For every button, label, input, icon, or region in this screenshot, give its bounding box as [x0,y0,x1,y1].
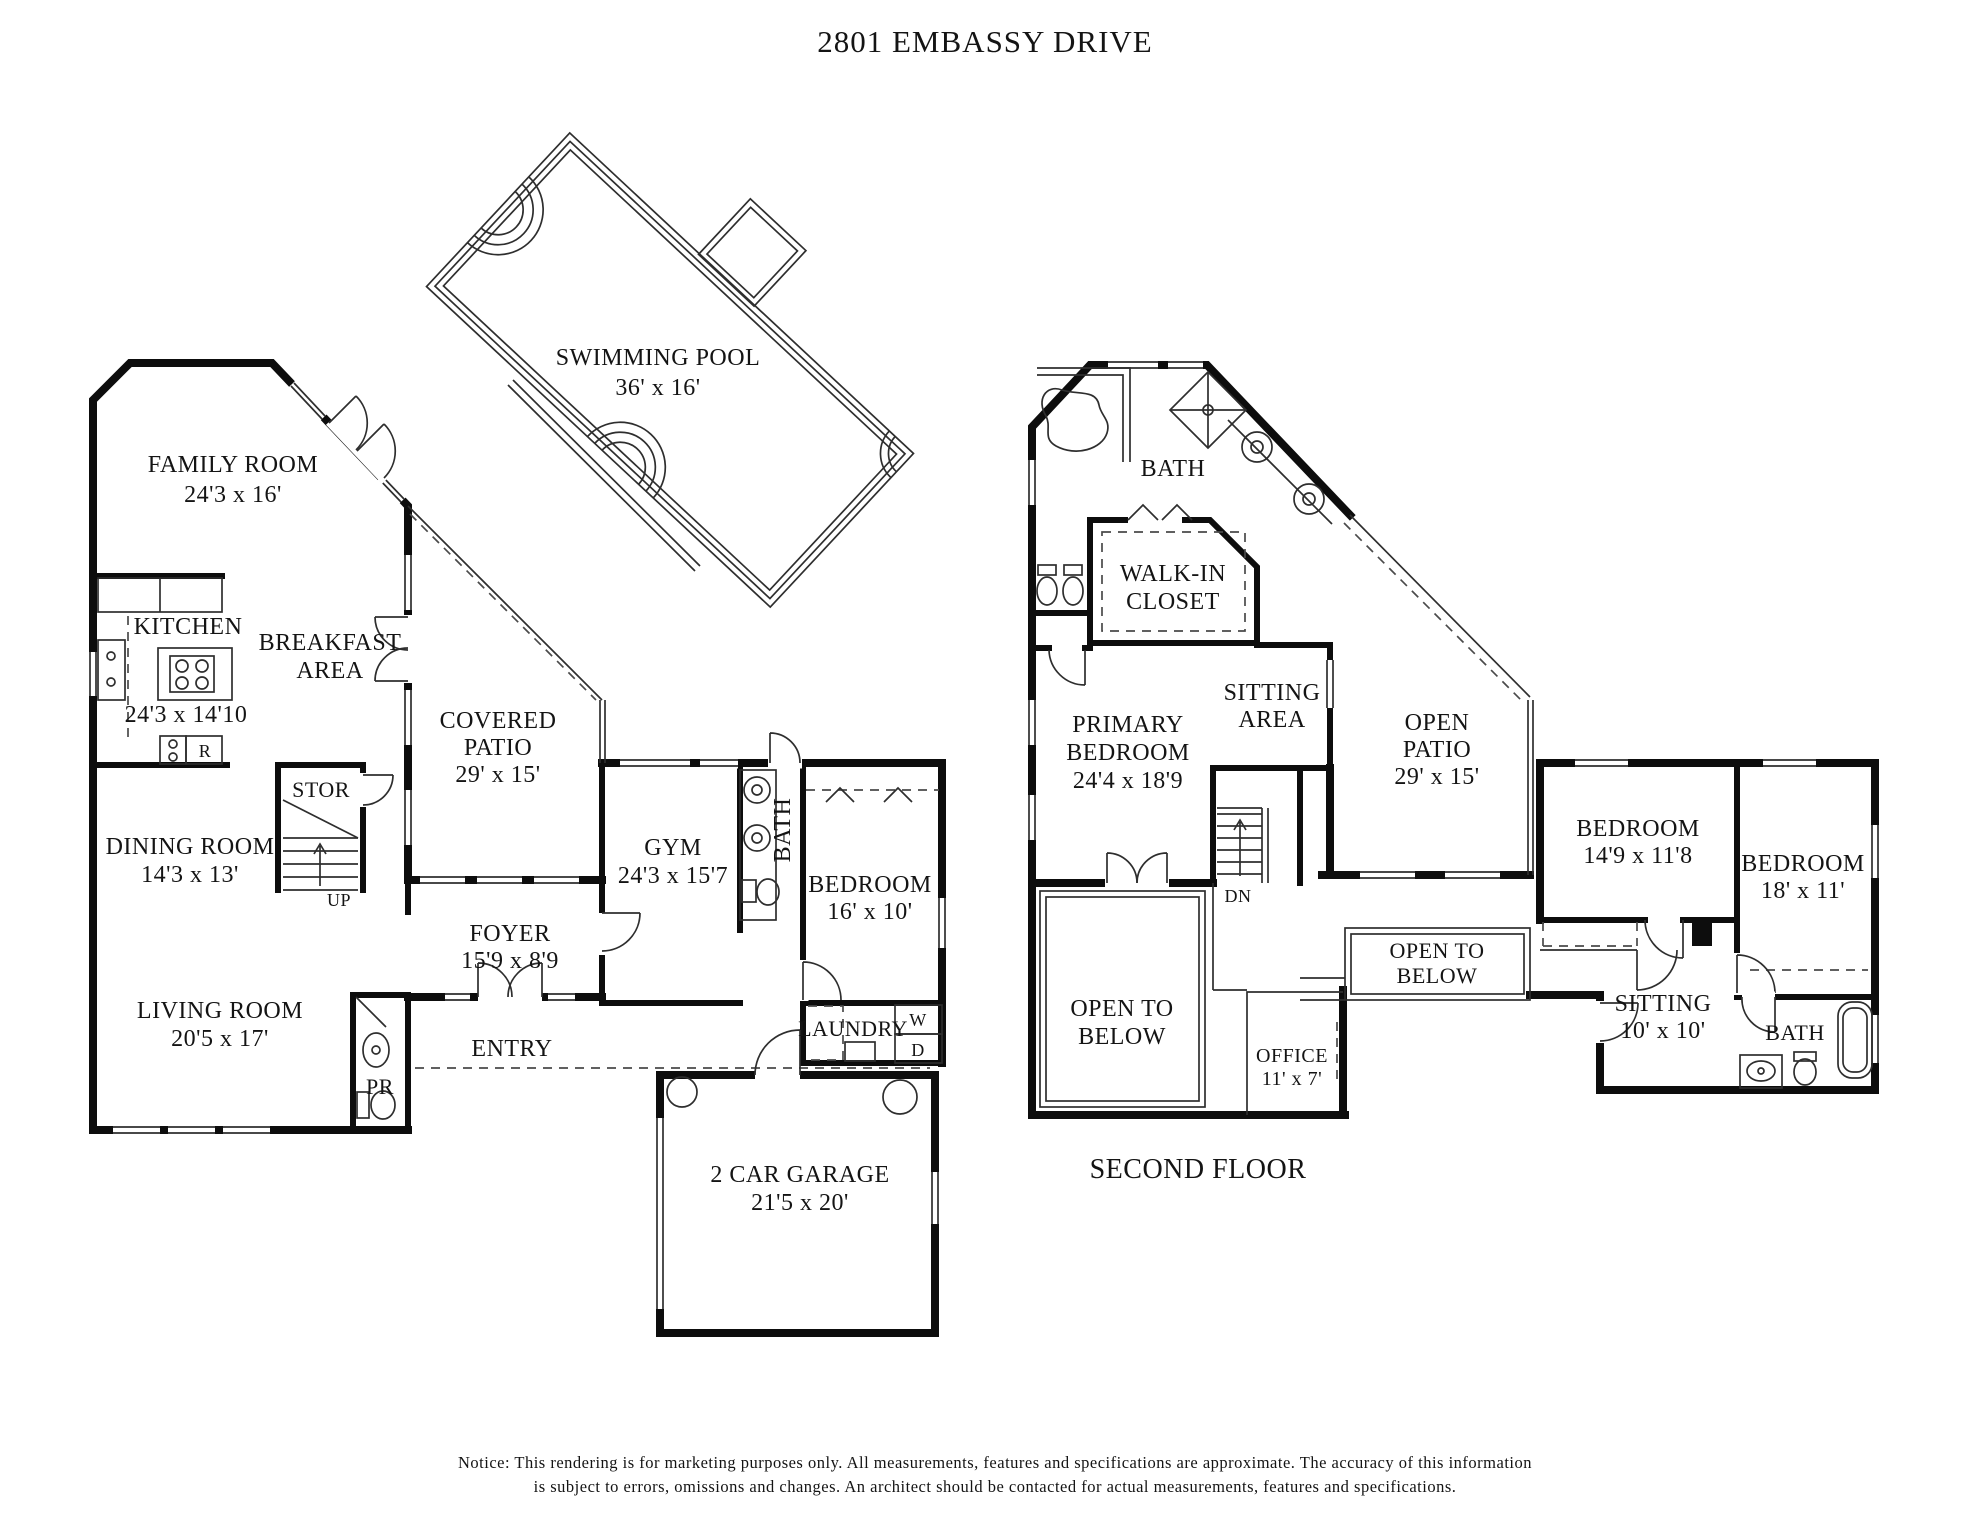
open-below-left-label2: BELOW [1078,1024,1166,1050]
tub-icon [1042,389,1108,451]
porch-column-icon [883,1080,917,1114]
bedroom2f-dims: 14'9 x 11'8 [1583,843,1692,869]
floorplan-drawing: 2801 EMBASSY DRIVE SWIMMING POOL 36' x 1… [0,0,1987,1535]
spa-icon [699,199,806,306]
chimney-chase [1692,918,1712,946]
kitchen-dims: 24'3 x 14'10 [125,702,248,728]
shower-icon [1170,372,1246,448]
notice-line1: Notice: This rendering is for marketing … [458,1453,1532,1472]
pr-label: PR [366,1074,394,1099]
sink-icon [1294,484,1324,514]
bedroom3f-label: BEDROOM [1741,851,1865,877]
porch-column-icon [667,1077,697,1107]
sitting-label: SITTING [1615,991,1712,1017]
bedroom2f-label: BEDROOM [1576,816,1700,842]
stairs-down-icon [1217,808,1268,883]
notice-line2: is subject to errors, omissions and chan… [534,1477,1457,1496]
sitting-dims: 10' x 10' [1620,1018,1705,1044]
breakfast-label2: AREA [296,658,364,684]
stairs-up-icon [283,800,358,890]
kitchen-sink-icon [98,640,125,700]
up-label: UP [327,890,351,910]
dryer-label: D [911,1040,925,1060]
living-dims: 20'5 x 17' [171,1026,269,1052]
bedroom1f-label: BEDROOM [808,872,932,898]
pr-door [356,997,386,1027]
garage-label: 2 CAR GARAGE [710,1162,889,1188]
open-below-right-label2: BELOW [1397,963,1478,988]
family-room-dims: 24'3 x 16' [184,482,282,508]
primary-bath-label: BATH [1141,456,1206,482]
walkin-label: WALK-IN [1120,561,1226,587]
toilet-icon [1037,577,1057,605]
primary-bedroom-dims: 24'4 x 18'9 [1073,768,1183,794]
garage-dims: 21'5 x 20' [751,1190,849,1216]
open-patio-dims: 29' x 15' [1394,764,1479,790]
hall-bath-label: BATH [1765,1020,1824,1045]
toilet-icon [1794,1059,1816,1085]
bidet-icon [1063,577,1083,605]
bath1-label: BATH [770,798,796,863]
stor-label: STOR [292,777,350,802]
kitchen-label: KITCHEN [134,614,243,640]
open-patio-label: OPEN [1405,710,1470,736]
sitting-area-label: SITTING [1224,680,1321,706]
kitchen-counter-icon [98,578,232,764]
sink-icon [1242,432,1272,462]
foyer-dims: 15'9 x 8'9 [461,948,559,974]
sitting-area-label2: AREA [1238,707,1306,733]
swimming-pool-outline [427,78,965,607]
breakfast-label: BREAKFAST [259,630,402,656]
sink-icon [1747,1061,1775,1081]
office-dims: 11' x 7' [1262,1068,1322,1090]
primary-bedroom-label: PRIMARY [1072,712,1184,738]
entry-label: ENTRY [471,1036,552,1062]
foyer-label: FOYER [469,921,550,947]
office-label: OFFICE [1256,1045,1328,1067]
dining-label: DINING ROOM [106,834,275,860]
walkin-label2: CLOSET [1126,589,1220,615]
gym-label: GYM [644,835,702,861]
pool-label: SWIMMING POOL [556,345,761,371]
covered-patio-dims: 29' x 15' [455,762,540,788]
covered-patio-label: COVERED [440,708,557,734]
gym-dims: 24'3 x 15'7 [618,863,728,889]
open-patio-label2: PATIO [1403,737,1471,763]
living-label: LIVING ROOM [137,998,303,1024]
primary-bedroom-label2: BEDROOM [1066,740,1190,766]
bedroom3f-dims: 18' x 11' [1761,878,1845,904]
laundry-label: LAUNDRY [798,1016,908,1041]
washer-label: W [909,1010,927,1030]
family-room-label: FAMILY ROOM [148,452,318,478]
hall-bath-fixtures [1740,1002,1872,1088]
open-below-right-label: OPEN TO [1390,938,1485,963]
page-title: 2801 EMBASSY DRIVE [817,24,1153,59]
covered-patio-label2: PATIO [464,735,532,761]
floorplan-page: 2801 EMBASSY DRIVE SWIMMING POOL 36' x 1… [0,0,1987,1535]
second-floor-title: SECOND FLOOR [1090,1154,1307,1185]
bedroom-closet-icon [806,788,939,802]
pool-deck-line [513,380,700,566]
bedroom1f-dims: 16' x 10' [827,899,912,925]
open-below-left-label: OPEN TO [1070,996,1173,1022]
refrigerator-label: R [199,741,212,761]
pool-dims: 36' x 16' [615,375,700,401]
dining-dims: 14'3 x 13' [141,862,239,888]
dn-label: DN [1225,886,1252,906]
